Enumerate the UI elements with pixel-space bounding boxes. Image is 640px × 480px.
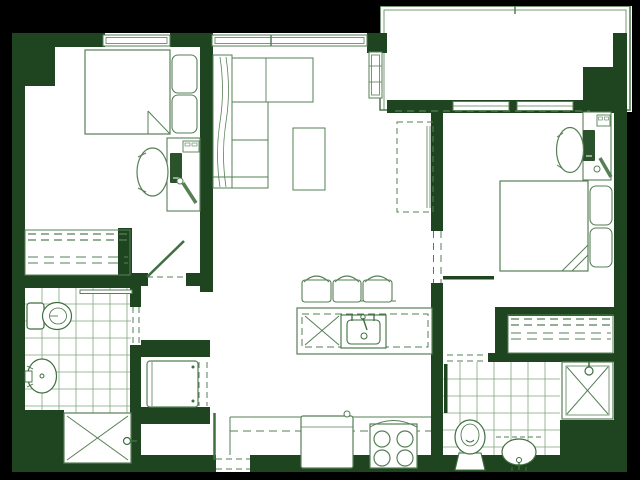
- mask-bottom: [0, 472, 640, 480]
- desk2-shelf: [597, 115, 610, 126]
- toilet2-base: [455, 453, 485, 470]
- wall-right: [614, 100, 627, 472]
- wall-top-pillar: [367, 33, 387, 53]
- washer-hinge-a: [192, 366, 195, 369]
- wall-v1-bedroom1-living: [200, 33, 213, 292]
- washer-box: [147, 361, 198, 407]
- desk1-lamp-dot: [177, 178, 183, 184]
- wall-washer-bottom: [141, 407, 210, 424]
- shower2-head: [585, 367, 593, 375]
- mask-right: [632, 0, 640, 480]
- mask-left: [0, 0, 12, 480]
- window-bedroom1-outer: [103, 35, 170, 46]
- mask-right-lower: [627, 112, 632, 472]
- sofa-chaise: [232, 58, 313, 102]
- wall-bath1-right-bottom: [130, 345, 141, 472]
- wall-bottom-left-block: [12, 410, 64, 472]
- wall-closet2-left: [495, 307, 508, 355]
- stool-2-body: [333, 280, 361, 302]
- window-living-outer: [212, 35, 367, 46]
- wall-bed1-door-stub-right: [186, 273, 202, 286]
- window-balcony-side-outer: [369, 52, 382, 98]
- bed1-pillow-a: [172, 55, 197, 93]
- wall-bed1-door-stub-left: [130, 273, 148, 286]
- bedroom2-door-leaf: [443, 276, 494, 280]
- wall-closet1-bottom: [12, 275, 132, 288]
- mask-balcony-top: [380, 0, 632, 6]
- washer-hinge-b: [192, 400, 195, 403]
- sofa-back: [213, 55, 232, 188]
- sofa-seat: [232, 102, 268, 188]
- wall-shower2-bottom-block: [560, 420, 614, 472]
- floor-plan-image: [0, 0, 640, 480]
- toilet1-tank: [27, 303, 44, 329]
- desk1-shelf: [183, 141, 199, 152]
- stool-1-body: [302, 280, 331, 302]
- wall-bath1-right-top: [130, 286, 141, 307]
- wall-closet2-bottom: [488, 353, 614, 362]
- mask-top: [0, 0, 380, 33]
- bed1-pillow-b: [172, 95, 197, 133]
- bed2-pillow-a: [590, 186, 612, 225]
- floor-plan-svg: [0, 0, 640, 480]
- desk2-lamp-dot: [594, 166, 600, 172]
- bathroom1-towel-bar: [80, 290, 132, 294]
- wall-washer-top: [141, 340, 210, 357]
- wall-v2-bottom: [431, 283, 443, 472]
- fridge: [301, 416, 353, 468]
- bathroom2-door-leaf: [444, 364, 448, 413]
- toilet2-bowl: [455, 420, 485, 454]
- fridge-knob: [344, 411, 350, 417]
- sink1-faucet: [25, 371, 32, 382]
- bed1: [85, 50, 170, 134]
- stool-3-body: [363, 280, 392, 302]
- coffee-table: [293, 128, 325, 190]
- sink2-faucet-dot: [517, 458, 522, 463]
- shower1-knob: [124, 438, 131, 445]
- bed2-pillow-b: [590, 228, 612, 267]
- wall-left: [12, 47, 25, 472]
- wall-top-a: [12, 33, 105, 47]
